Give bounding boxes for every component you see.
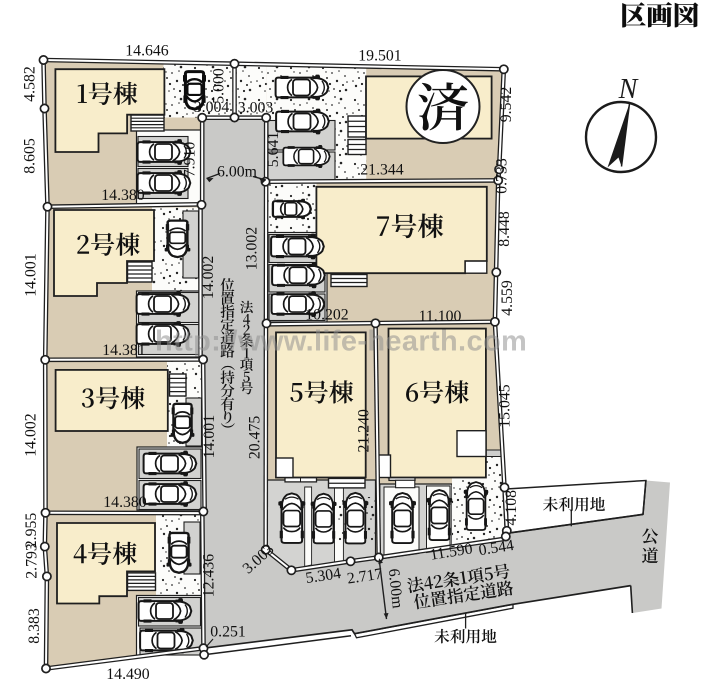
svg-text:14.002: 14.002 — [200, 256, 217, 300]
svg-text:8.448: 8.448 — [496, 211, 513, 247]
svg-text:13.002: 13.002 — [244, 227, 261, 271]
svg-text:12.436: 12.436 — [201, 554, 218, 598]
svg-text:8.605: 8.605 — [22, 138, 39, 174]
svg-text:14.490: 14.490 — [106, 666, 150, 681]
svg-text:11.100: 11.100 — [419, 308, 462, 325]
svg-text:21.240: 21.240 — [356, 409, 373, 453]
svg-text:14.001: 14.001 — [23, 253, 40, 296]
svg-text:14.001: 14.001 — [201, 415, 218, 458]
svg-text:7.910: 7.910 — [182, 142, 199, 178]
svg-text:10.202: 10.202 — [305, 307, 349, 324]
svg-text:14.380: 14.380 — [101, 187, 145, 204]
svg-text:15.045: 15.045 — [497, 384, 514, 428]
svg-text:0.251: 0.251 — [210, 624, 246, 641]
svg-text:4.582: 4.582 — [22, 66, 39, 102]
svg-text:5.641: 5.641 — [265, 132, 282, 168]
svg-text:http://www.life-hearth.com: http://www.life-hearth.com — [155, 326, 527, 358]
svg-text:14.380: 14.380 — [103, 494, 147, 511]
svg-text:N: N — [618, 74, 639, 105]
svg-text:20.475: 20.475 — [247, 416, 264, 460]
svg-text:4.559: 4.559 — [499, 280, 516, 316]
svg-text:6.00m: 6.00m — [217, 164, 258, 181]
svg-text:3.003: 3.003 — [238, 100, 274, 117]
svg-text:21.344: 21.344 — [360, 162, 404, 179]
svg-text:19.501: 19.501 — [358, 48, 401, 65]
svg-text:14.646: 14.646 — [125, 43, 169, 60]
svg-text:14.002: 14.002 — [23, 413, 40, 457]
svg-text:2.793: 2.793 — [24, 543, 41, 579]
svg-text:4.108: 4.108 — [503, 490, 520, 526]
svg-text:9.542: 9.542 — [498, 87, 515, 123]
svg-text:0.733: 0.733 — [494, 158, 511, 194]
svg-text:5.000: 5.000 — [211, 68, 228, 104]
svg-text:8.383: 8.383 — [26, 608, 43, 644]
svg-text:2.955: 2.955 — [23, 513, 40, 549]
svg-text:14.381: 14.381 — [102, 342, 145, 359]
